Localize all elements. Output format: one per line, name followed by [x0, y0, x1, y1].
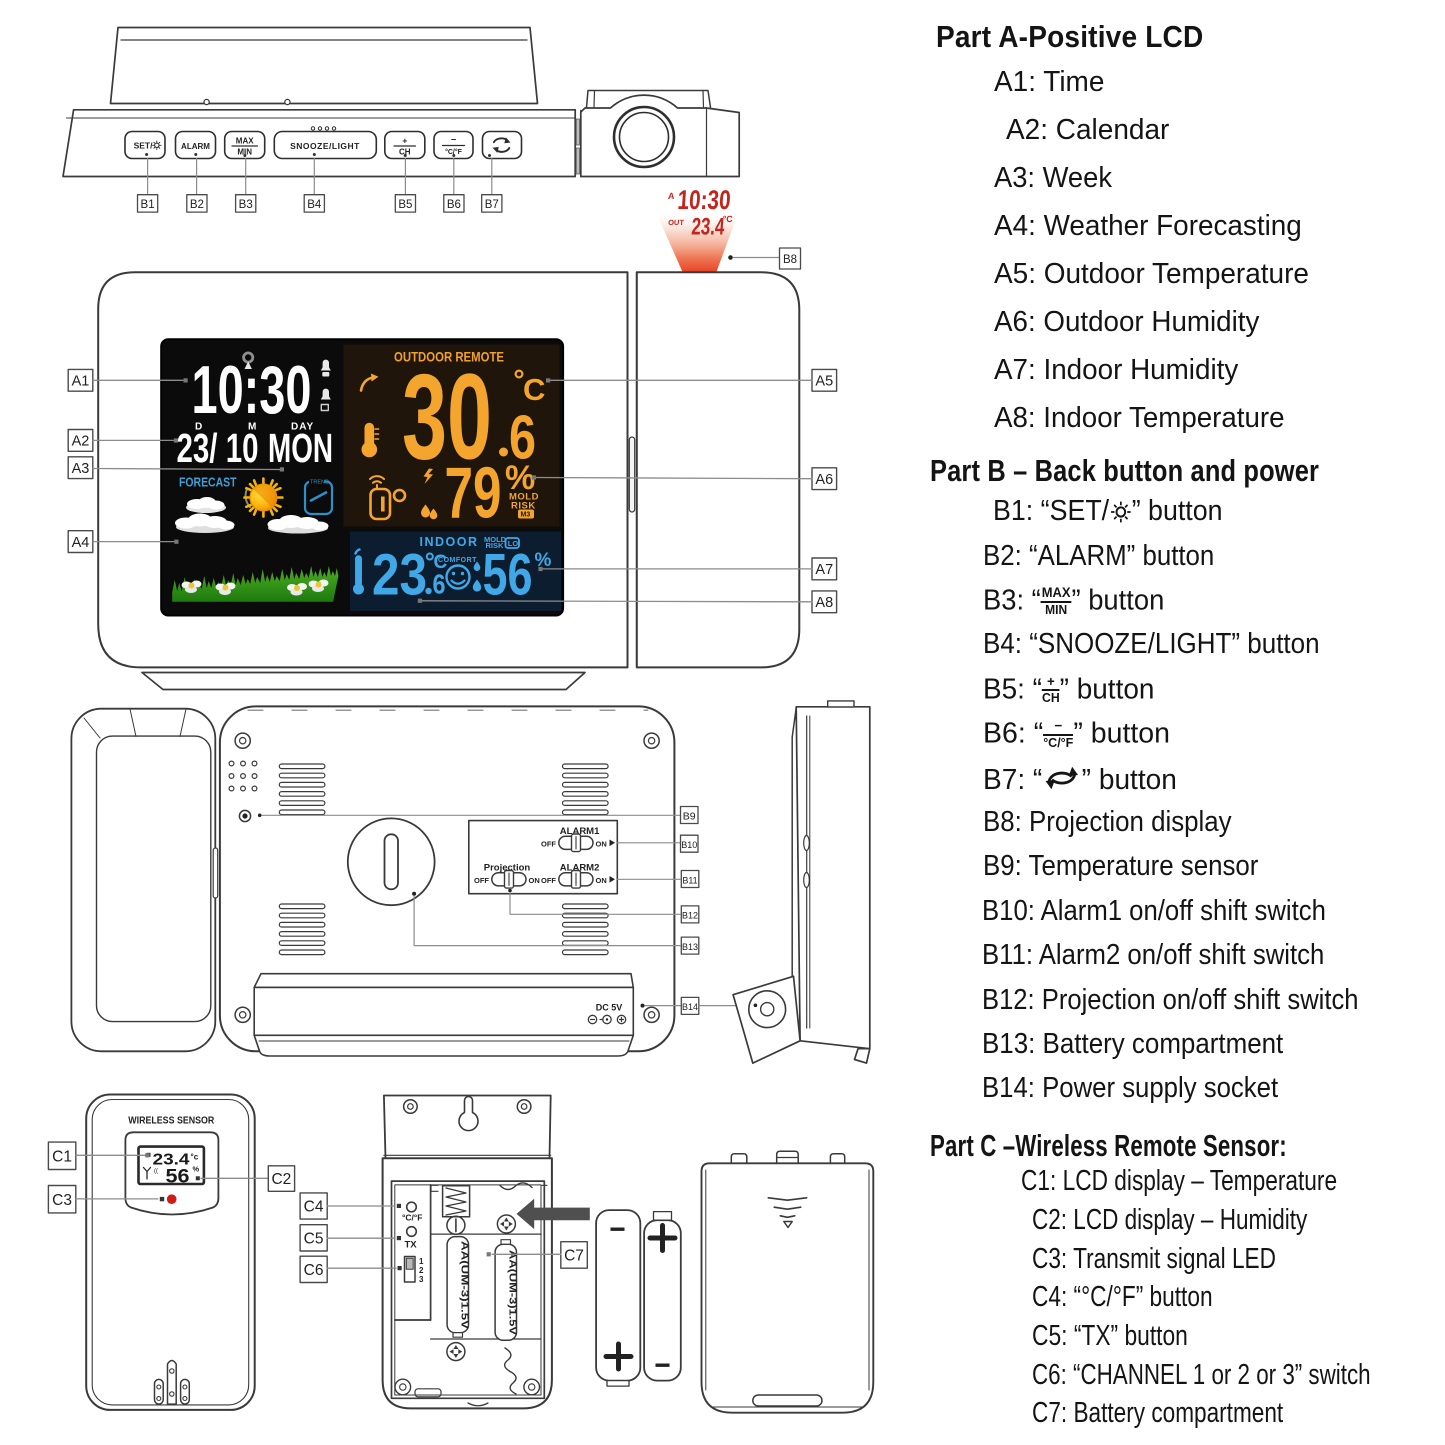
svg-text:3: 3: [419, 1275, 424, 1284]
svg-text:B7: B7: [485, 199, 499, 211]
svg-text:56: 56: [166, 1167, 190, 1188]
svg-text:1: 1: [419, 1257, 424, 1266]
svg-text:C5: C5: [304, 1230, 324, 1247]
svg-text:A8: A8: [815, 595, 833, 611]
svg-text:C4: C4: [304, 1199, 324, 1216]
svg-text:A5: A5: [815, 374, 833, 390]
svg-text:SET/: SET/: [134, 141, 154, 151]
svg-text:B6: B6: [447, 199, 461, 211]
svg-text:C2: C2: [271, 1171, 291, 1188]
svg-text:C: C: [523, 372, 545, 407]
svg-text:A6: A6: [815, 472, 833, 488]
svg-text:+: +: [402, 136, 407, 146]
svg-text:°c: °c: [191, 1153, 199, 1162]
svg-text:79: 79: [445, 454, 502, 534]
svg-text:B9: B9: [683, 810, 696, 822]
svg-text:WIRELESS SENSOR: WIRELESS SENSOR: [128, 1115, 214, 1127]
svg-text:SNOOZE/LIGHT: SNOOZE/LIGHT: [290, 141, 360, 151]
svg-text:ON: ON: [596, 876, 607, 885]
svg-text:AA(UM-3)1.5V: AA(UM-3)1.5V: [459, 1241, 470, 1329]
svg-text:A2: A2: [72, 434, 90, 450]
svg-text:B8: B8: [783, 254, 797, 266]
svg-text:OUT: OUT: [668, 218, 685, 227]
svg-text:A3: A3: [72, 461, 90, 477]
svg-text:MAX: MAX: [236, 137, 254, 146]
svg-text:DC 5V: DC 5V: [596, 1003, 623, 1013]
svg-text:OFF: OFF: [474, 876, 489, 885]
svg-text:OFF: OFF: [541, 840, 556, 849]
svg-text:A: A: [668, 191, 676, 201]
svg-text:OFF: OFF: [541, 876, 556, 885]
svg-text:M3: M3: [521, 512, 531, 519]
svg-text:B13: B13: [682, 942, 698, 952]
svg-text:((: ((: [154, 1169, 158, 1175]
svg-text:23.4: 23.4: [691, 214, 726, 241]
svg-text:AA(UM-3)1.5V: AA(UM-3)1.5V: [507, 1250, 518, 1335]
svg-text:B10: B10: [681, 840, 697, 850]
svg-text:ON: ON: [529, 876, 540, 885]
svg-text:FORECAST: FORECAST: [179, 475, 237, 490]
svg-text:°C/°F: °C/°F: [402, 1213, 423, 1223]
svg-text:ALARM: ALARM: [181, 142, 210, 151]
svg-text:10:30: 10:30: [677, 185, 732, 215]
svg-text:%: %: [535, 550, 552, 571]
svg-text:B14: B14: [682, 1002, 698, 1012]
svg-text:10:30: 10:30: [192, 352, 312, 428]
svg-text:56: 56: [483, 543, 533, 608]
svg-text:COMFORT: COMFORT: [438, 557, 477, 564]
svg-text:C3: C3: [52, 1192, 72, 1209]
svg-text:6: 6: [433, 569, 446, 600]
svg-text:%: %: [193, 1165, 200, 1174]
svg-text:B11: B11: [682, 875, 697, 885]
svg-text:B12: B12: [682, 911, 698, 921]
svg-text:INDOOR: INDOOR: [420, 535, 479, 549]
svg-text:B3: B3: [239, 199, 253, 211]
svg-text:MON: MON: [268, 425, 333, 471]
svg-text:C1: C1: [52, 1149, 72, 1166]
svg-text:TREND: TREND: [310, 480, 329, 486]
svg-text:B2: B2: [190, 199, 204, 211]
svg-text:TX: TX: [405, 1240, 418, 1251]
svg-text:C7: C7: [564, 1248, 584, 1265]
svg-text:A7: A7: [815, 562, 833, 578]
svg-text:B5: B5: [398, 199, 412, 211]
svg-text:23: 23: [372, 543, 427, 608]
svg-text:°C: °C: [722, 214, 733, 224]
svg-text:ON: ON: [596, 840, 607, 849]
svg-text:23/ 10: 23/ 10: [177, 425, 259, 471]
svg-text:C6: C6: [304, 1262, 324, 1279]
svg-text:−: −: [451, 135, 456, 145]
svg-text:B4: B4: [307, 199, 322, 211]
svg-text:2: 2: [419, 1266, 424, 1275]
svg-text:B1: B1: [141, 199, 155, 211]
svg-text:A1: A1: [72, 374, 90, 390]
svg-text:A4: A4: [72, 535, 90, 551]
